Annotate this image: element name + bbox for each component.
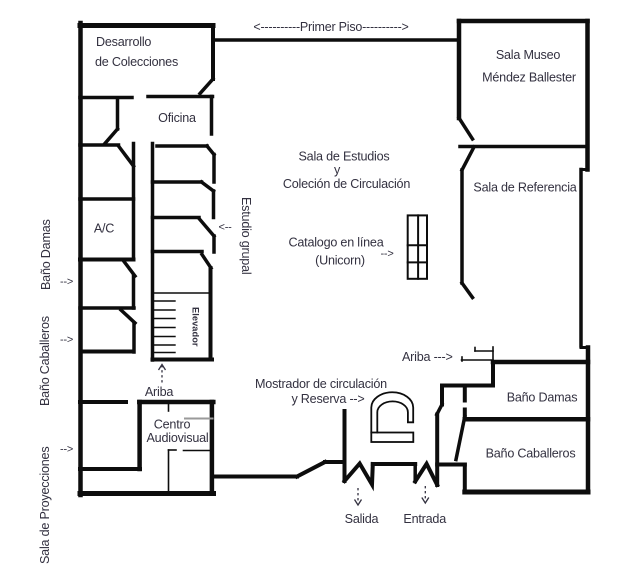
svg-text:Estudio grupal: Estudio grupal: [239, 197, 253, 274]
svg-text:Oficina: Oficina: [158, 111, 196, 125]
svg-text:A/C: A/C: [94, 222, 114, 236]
svg-text:Ariba --->: Ariba --->: [402, 350, 453, 364]
svg-text:Desarrollo: Desarrollo: [96, 35, 151, 49]
svg-text:Audiovisual: Audiovisual: [147, 431, 209, 445]
svg-text:Baño Caballeros: Baño Caballeros: [486, 447, 576, 461]
svg-text:Centro: Centro: [154, 418, 191, 432]
svg-text:y: y: [334, 163, 341, 177]
svg-text:Méndez Ballester: Méndez Ballester: [482, 71, 576, 85]
svg-text:-->: -->: [380, 248, 393, 260]
svg-text:de Colecciones: de Colecciones: [95, 55, 178, 69]
svg-text:Baño Caballeros: Baño Caballeros: [38, 316, 52, 406]
svg-text:Baño Damas: Baño Damas: [39, 219, 53, 290]
svg-text:Coleción de Circulación: Coleción de Circulación: [283, 177, 410, 191]
svg-text:(Unicorn): (Unicorn): [315, 254, 365, 268]
svg-text:Mostrador de circulación: Mostrador de circulación: [255, 377, 387, 391]
svg-text:Elevador: Elevador: [191, 307, 201, 347]
svg-text:<--: <--: [219, 222, 233, 234]
svg-text:Catalogo en línea: Catalogo en línea: [289, 236, 384, 250]
svg-text:Salida: Salida: [345, 512, 379, 526]
svg-text:Baño Damas: Baño Damas: [507, 391, 578, 405]
svg-text:Sala de Estudios: Sala de Estudios: [299, 150, 390, 164]
svg-text:<----------Primer Piso--------: <----------Primer Piso---------->: [253, 20, 408, 34]
svg-text:Entrada: Entrada: [403, 512, 446, 526]
svg-text:Ariba: Ariba: [145, 385, 174, 399]
svg-text:Sala de Proyecciones: Sala de Proyecciones: [38, 447, 52, 564]
svg-text:Sala de Referencia: Sala de Referencia: [473, 181, 576, 195]
svg-text:-->: -->: [60, 444, 73, 456]
svg-text:Sala Museo: Sala Museo: [496, 48, 561, 62]
svg-text:-->: -->: [60, 334, 73, 346]
svg-text:-->: -->: [60, 276, 73, 288]
svg-text:y Reserva -->: y Reserva -->: [291, 392, 364, 406]
